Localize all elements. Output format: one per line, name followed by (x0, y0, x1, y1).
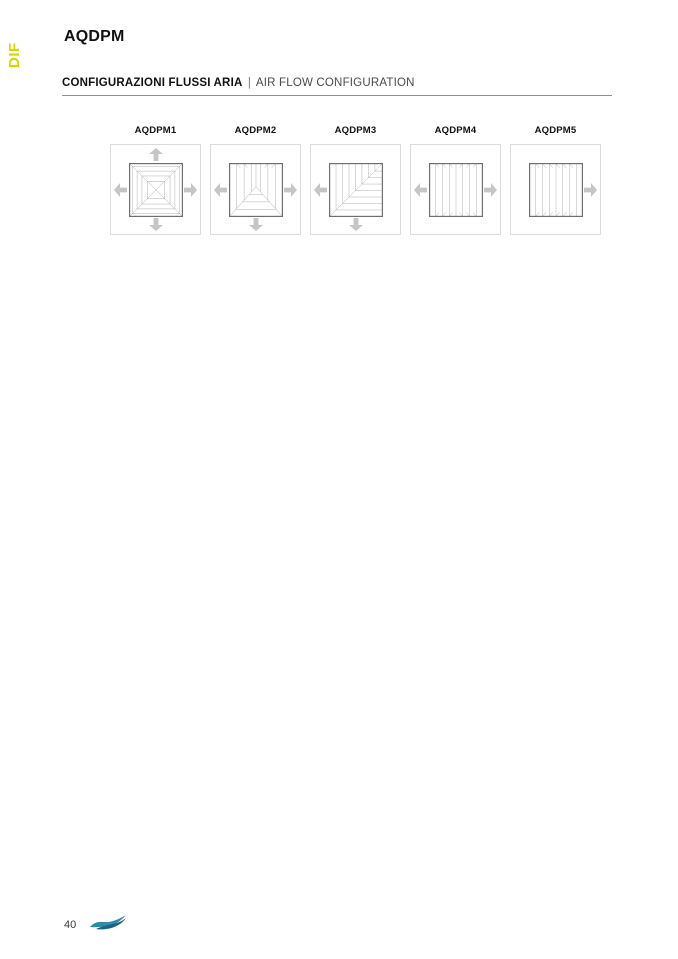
arrow-down-icon (148, 218, 163, 231)
arrow-right-icon (284, 182, 297, 197)
diffuser-pattern-1way (529, 163, 583, 217)
arrow-left-icon (314, 182, 327, 197)
diffuser-pattern-4way (129, 163, 183, 217)
airflow-configuration-row: AQDPM1 AQDPM2 (110, 125, 601, 235)
diffuser-pattern-3way (229, 163, 283, 217)
diffuser-label: AQDPM5 (510, 125, 601, 136)
arrow-down-icon (348, 218, 363, 231)
diffuser-card: AQDPM1 (110, 125, 201, 235)
diffuser-pattern-2way-corner (329, 163, 383, 217)
arrow-right-icon (484, 182, 497, 197)
section-title-separator: | (246, 77, 253, 89)
diffuser-card: AQDPM3 (310, 125, 401, 235)
diffuser-label: AQDPM1 (110, 125, 201, 136)
arrow-down-icon (248, 218, 263, 231)
side-tab-label: DIF (6, 42, 23, 68)
diffuser-label: AQDPM4 (410, 125, 501, 136)
diffuser-label: AQDPM2 (210, 125, 301, 136)
diffuser-card: AQDPM2 (210, 125, 301, 235)
arrow-right-icon (584, 182, 597, 197)
diffuser-diagram (110, 144, 201, 235)
diffuser-card: AQDPM5 (510, 125, 601, 235)
diffuser-card: AQDPM4 (410, 125, 501, 235)
diffuser-diagram (310, 144, 401, 235)
section-title-italian: CONFIGURAZIONI FLUSSI ARIA (62, 77, 242, 89)
diffuser-diagram (410, 144, 501, 235)
section-title-english: AIR FLOW CONFIGURATION (256, 77, 415, 89)
page-title: AQDPM (64, 28, 125, 46)
page-number: 40 (64, 919, 76, 931)
diffuser-diagram (210, 144, 301, 235)
arrow-left-icon (214, 182, 227, 197)
diffuser-label: AQDPM3 (310, 125, 401, 136)
arrow-left-icon (414, 182, 427, 197)
section-header: CONFIGURAZIONI FLUSSI ARIA | AIR FLOW CO… (62, 77, 612, 96)
wave-logo-icon (88, 913, 128, 940)
arrow-left-icon (114, 182, 127, 197)
diffuser-diagram (510, 144, 601, 235)
arrow-up-icon (148, 148, 163, 161)
diffuser-pattern-2way-opposite (429, 163, 483, 217)
arrow-right-icon (184, 182, 197, 197)
